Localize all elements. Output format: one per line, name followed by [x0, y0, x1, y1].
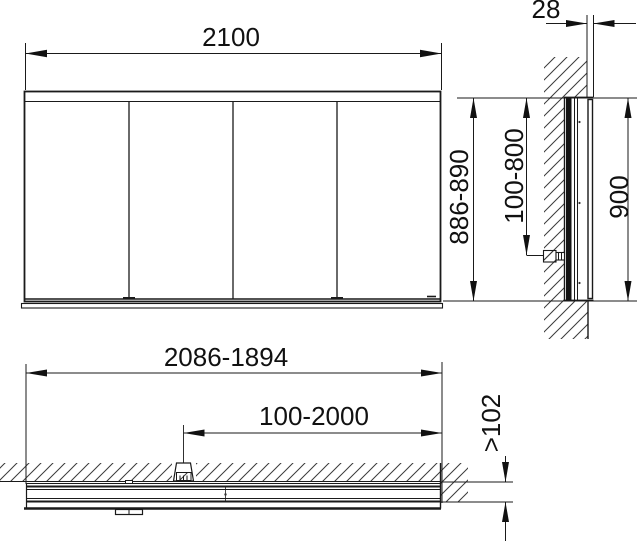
arrow-left: [184, 430, 205, 437]
dim-label-front-width: 2100: [161, 24, 301, 50]
dim-label-cabinet-height: 886-890: [446, 127, 472, 267]
dim-label-niche-width: 2086-1894: [156, 344, 296, 370]
dim-label-niche-depth: >102: [478, 353, 504, 493]
arrow-down: [625, 281, 632, 301]
mounting-tab-top: [126, 481, 133, 484]
side-view: [544, 15, 594, 339]
plan-view: [0, 425, 468, 515]
dim-label-connection-range: 100-800: [501, 106, 527, 246]
arrow-right: [421, 430, 442, 437]
arrow-up: [625, 98, 632, 118]
dim-label-connection-position: 100-2000: [244, 403, 384, 429]
dim-label-protrusion: 28: [476, 0, 616, 22]
drawing-canvas: [0, 0, 640, 547]
arrow-up: [502, 502, 509, 522]
arrow-down: [470, 281, 477, 301]
mirror-door-section: [588, 100, 593, 299]
dim-label-niche-height: 900: [606, 127, 632, 267]
arrow-left: [26, 370, 47, 377]
front-view: [22, 92, 443, 309]
cabinet-carcass-section: [566, 99, 572, 301]
arrow-left: [26, 50, 48, 57]
bottom-light-strip: [22, 304, 443, 309]
arrow-up: [470, 98, 477, 118]
arrow-right: [421, 370, 442, 377]
wall-hatch-plan: [0, 463, 468, 502]
arrow-right: [420, 50, 442, 57]
fixing-points: [578, 121, 580, 284]
dimension-drawing: 2100 28 886-890 100-800 900 2086-1894 10…: [0, 0, 640, 547]
power-connection-side-icon: [544, 251, 565, 263]
